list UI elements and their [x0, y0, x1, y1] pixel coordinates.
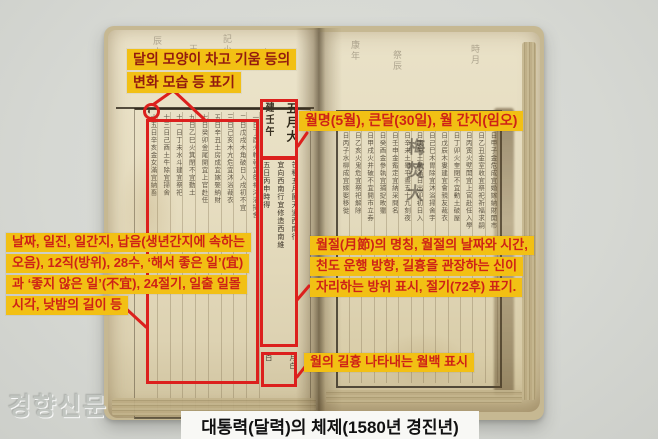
annotation-line: 오음), 12직(방위), 28수, ‘해서 좋은 일’(宜)	[6, 254, 249, 273]
annotation-line: 천도 운행 방향, 길흉을 관장하는 신이	[310, 257, 523, 276]
photo-caption-bar: 대통력(달력)의 체제(1580년 경진년)	[181, 411, 479, 439]
annotation-line: 시각, 낮밤의 길이 등	[6, 296, 128, 315]
highlight-circle-moon-symbol	[143, 103, 160, 120]
annotation-line: 과 ‘좋지 않은 일’(不宜), 24절기, 일출 일몰	[6, 275, 247, 294]
annotation-moon-phase: 달의 모양이 차고 기움 등의 변화 모습 등 표기	[127, 49, 296, 95]
annotation-line: 월명(5월), 큰달(30일), 월 간지(임오)	[299, 111, 523, 131]
annotation-line: 자리하는 방위 표시, 절기(72후) 표기.	[310, 278, 522, 297]
highlight-box-month-luck	[261, 352, 297, 387]
ink-bleed-mark: 康年	[348, 40, 361, 76]
photo-caption: 대통력(달력)의 체제(1580년 경진년)	[201, 413, 459, 438]
annotation-month-header: 월명(5월), 큰달(30일), 월 간지(임오)	[299, 111, 523, 133]
page-edge-bottom-right	[326, 390, 522, 404]
annotation-line: 달의 모양이 차고 기움 등의	[127, 49, 296, 70]
highlight-box-month-header	[260, 99, 298, 159]
annotation-line: 월절(月節)의 명칭, 월절의 날짜와 시간,	[310, 236, 534, 255]
annotation-line: 날짜, 일진, 일간지, 납음(생년간지에 속하는	[6, 233, 251, 252]
annotation-month-luck: 월의 길흉 나타내는 월백 표시	[304, 353, 474, 374]
ink-bleed-mark: 祭辰	[390, 50, 403, 90]
page-edge-right	[522, 42, 536, 400]
newspaper-watermark: 경향신문	[8, 387, 108, 423]
annotation-month-term: 월절(月節)의 명칭, 월절의 날짜와 시간, 천도 운행 방향, 길흉을 관장…	[310, 236, 534, 299]
annotation-line: 변화 모습 등 표기	[127, 72, 241, 93]
annotation-line: 월의 길흉 나타내는 월백 표시	[304, 353, 474, 372]
annotation-day-columns: 날짜, 일진, 일간지, 납음(생년간지에 속하는 오음), 12직(방위), …	[6, 233, 251, 317]
highlight-box-month-term	[260, 157, 298, 347]
ink-bleed-mark: 時月	[468, 44, 481, 82]
